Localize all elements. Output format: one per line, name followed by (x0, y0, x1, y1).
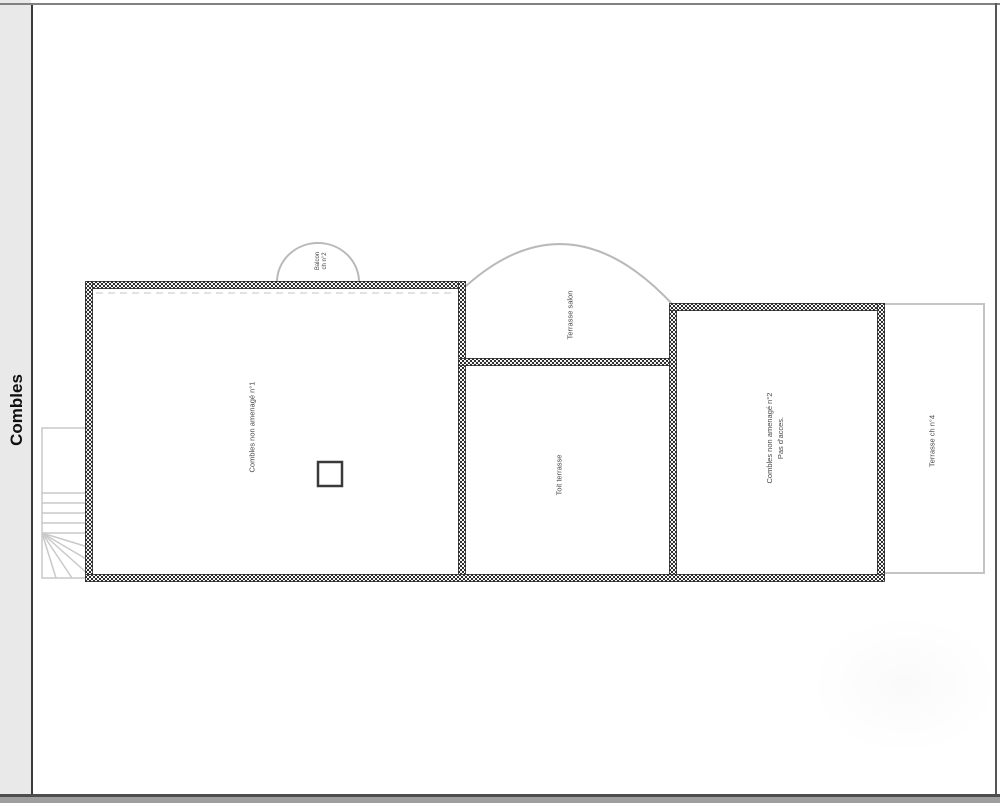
frame-right-line (995, 3, 997, 797)
frame-top-line (0, 3, 1000, 5)
wall-bottom (85, 574, 885, 582)
floorplan-page: Combles non amenagé n°1 Balcon ch n°2 Te… (0, 0, 1000, 803)
room-label-text: Balcon ch n°2 (315, 252, 329, 270)
room-label-text: Terrasse ch n°4 (928, 415, 937, 467)
floor-tab-sidebar[interactable]: Combles (0, 0, 31, 803)
attic2-label-line1: Combles non amenagé n°2 (764, 393, 775, 484)
wall-attic2-top (669, 303, 885, 311)
room-label-text: Toit terrasse (555, 455, 564, 496)
wall-middle-right (669, 303, 677, 582)
room-label-text: Terrasse salon (566, 291, 575, 340)
room-label-text: Combles non amenagé n°2 Pas d'acces. (764, 393, 786, 484)
wall-attic2-right (877, 303, 885, 582)
sidebar-divider (31, 3, 33, 796)
wall-attic1-left (85, 281, 93, 582)
wall-terrace-divider (458, 358, 677, 366)
balcony-label-line2: ch n°2 (322, 252, 329, 270)
chimney-square (318, 462, 342, 486)
floor-tab-label: Combles (7, 374, 27, 446)
staircase (42, 428, 88, 578)
frame-bottom-shadow (0, 797, 1000, 803)
balcony-label-line1: Balcon (315, 252, 322, 270)
room-label-text: Combles non amenagé n°1 (248, 382, 257, 473)
wall-attic1-top (85, 281, 466, 289)
plan-drawing (0, 0, 1000, 803)
wall-middle-left (458, 281, 466, 582)
attic2-label-line2: Pas d'acces. (775, 393, 786, 484)
